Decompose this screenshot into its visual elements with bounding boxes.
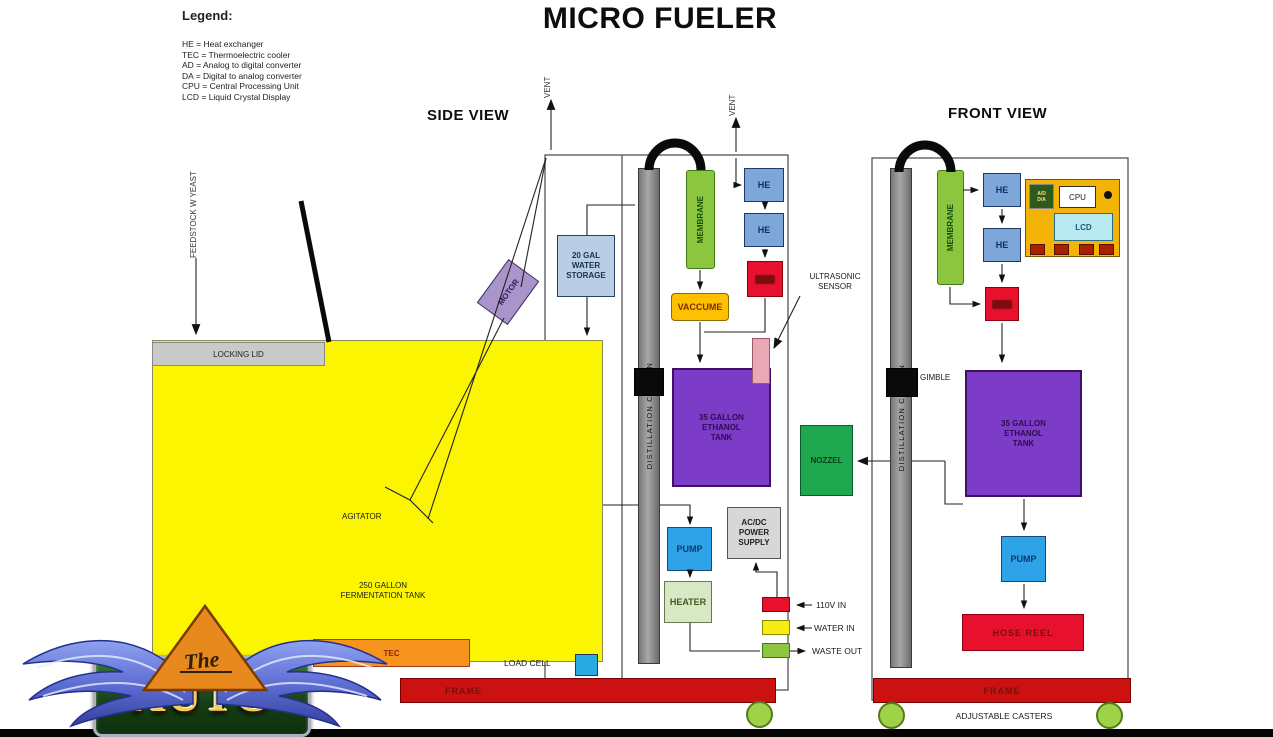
nozzle-box: NOZZEL [800,425,853,496]
condenser-box [985,287,1019,321]
gimble-block-front [886,368,918,397]
page-title: MICRO FUELER [440,2,880,36]
feedstock-label: FEEDSTOCK W YEAST [189,128,198,258]
panel-button [1030,244,1045,255]
heat-exchanger-box: HE [744,168,784,202]
adjustable-casters-label: ADJUSTABLE CASTERS [942,711,1066,721]
heater-to-waste-line [690,623,760,651]
frame-bar-side: FRAME [400,678,776,703]
fermentation-tank-label: 250 GALLON FERMENTATION TANK [303,581,463,601]
110v-inlet [762,597,790,612]
agitator-label: AGITATOR [342,512,382,521]
water-inlet [762,620,790,635]
membrane-side: MEMBRANE [686,170,715,269]
ethanol-tank-front: 35 GALLON ETHANOL TANK [965,370,1082,497]
agitator-rod [301,201,329,342]
panel-knob [1104,191,1112,199]
ultrasonic-sensor-label: ULTRASONIC SENSOR [793,272,877,292]
front-view-heading: FRONT VIEW [948,105,1047,122]
water-in-label: WATER IN [814,623,855,633]
distillation-column-side: DISTILLATION COLUMN [638,168,660,664]
gimble-label: GIMBLE [920,373,950,382]
nozzle-hose-line [872,461,963,504]
vapor-pipe-arc [649,143,701,170]
legend-entry: LCD = Liquid Crystal Display [182,92,392,103]
side-view-heading: SIDE VIEW [427,107,509,124]
110v-in-label: 110V IN [816,600,846,610]
illegible-text [992,300,1012,309]
panel-button [1079,244,1094,255]
pump-box-front: PUMP [1001,536,1046,582]
legend-heading: Legend: [182,8,392,23]
panel-button [1099,244,1114,255]
logo-the-text: The [183,646,221,675]
legend-entry: HE = Heat exchanger [182,39,392,50]
cabinet-to-motor-line [521,158,546,287]
power-supply-arrow [756,563,777,597]
membrane-front: MEMBRANE [937,170,964,285]
legend-entry: TEC = Thermoelectric cooler [182,50,392,61]
condenser-box [747,261,783,297]
heat-exchanger-box: HE [983,228,1021,262]
caster-wheel [878,702,905,729]
locking-lid: LOCKING LID [152,342,325,366]
motor-box: MOTOR [477,259,539,325]
membrane-label: MEMBRANE [946,204,955,251]
caster-wheel [746,701,773,728]
pump-box-side: PUMP [667,527,712,571]
panel-button [1054,244,1069,255]
motor-label: MOTOR [496,277,521,306]
logo-triangle: The [140,602,270,694]
water-storage-box: 20 GAL WATER STORAGE [557,235,615,297]
vacuum-box: VACCUME [671,293,729,321]
ad-da-chip: A/D D/A [1029,184,1054,209]
hose-reel-box: HOSE REEL [962,614,1084,651]
heater-box: HEATER [664,581,712,623]
legend-entry: CPU = Central Processing Unit [182,81,392,92]
heat-exchanger-box: HE [744,213,784,247]
vent-to-he-line [736,158,741,185]
control-panel: A/D D/A CPU LCD [1025,179,1120,257]
ultrasonic-sensor [752,338,770,384]
legend-entry: DA = Digital to analog converter [182,71,392,82]
heat-exchanger-box: HE [983,173,1021,207]
waste-out-label: WASTE OUT [812,646,862,656]
ultrasonic-pointer-line [774,296,800,348]
vent-label: VENT [543,62,552,98]
waste-outlet [762,643,790,658]
cpu-box: CPU [1059,186,1096,208]
gimble-block-side [634,368,664,396]
distillation-column-front: DISTILLATION COLUMN [890,168,912,668]
lcd-box: LCD [1054,213,1113,241]
ethanol-tank-side: 35 GALLON ETHANOL TANK [672,368,771,487]
load-cell-box [575,654,598,676]
vent-label: VENT [728,80,737,116]
membrane-to-condenser-arrow [950,287,980,304]
illegible-text [755,275,775,284]
micro-fueler-diagram: MICRO FUELER Legend: HE = Heat exchanger… [0,0,1273,737]
caster-wheel [1096,702,1123,729]
frame-bar-front: FRAME [873,678,1131,703]
legend-entry: AD = Analog to digital converter [182,60,392,71]
load-cell-label: LOAD CELL [504,658,551,668]
legend: Legend: HE = Heat exchanger TEC = Thermo… [182,8,392,102]
membrane-label: MEMBRANE [696,196,705,243]
water-storage-top-line [587,205,635,235]
power-supply-box: AC/DC POWER SUPPLY [727,507,781,559]
